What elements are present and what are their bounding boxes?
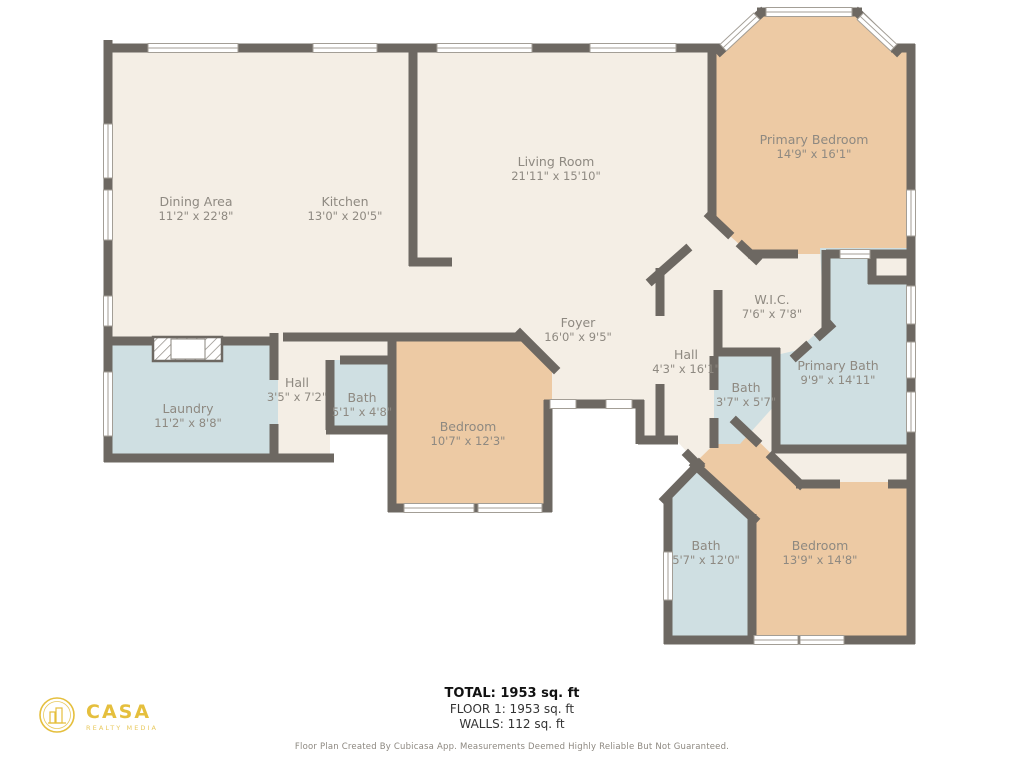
room-fill-primary-bedroom bbox=[708, 10, 915, 254]
brand-logo: CASA REALTY MEDIA bbox=[36, 692, 158, 742]
logo-brand: CASA bbox=[86, 703, 158, 722]
disclaimer-text: Floor Plan Created By Cubicasa App. Meas… bbox=[0, 742, 1024, 752]
floorplan-drawing bbox=[0, 0, 1024, 768]
logo-buildings-icon bbox=[36, 692, 78, 742]
floorplan-page: Dining Area11'2" x 22'8"Kitchen13'0" x 2… bbox=[0, 0, 1024, 768]
laundry-hatch bbox=[153, 337, 222, 361]
room-fill-bedroom-front bbox=[392, 333, 552, 512]
room-fill-bath-front bbox=[330, 360, 396, 434]
logo-tagline: REALTY MEDIA bbox=[86, 724, 158, 732]
room-fills bbox=[108, 10, 915, 644]
